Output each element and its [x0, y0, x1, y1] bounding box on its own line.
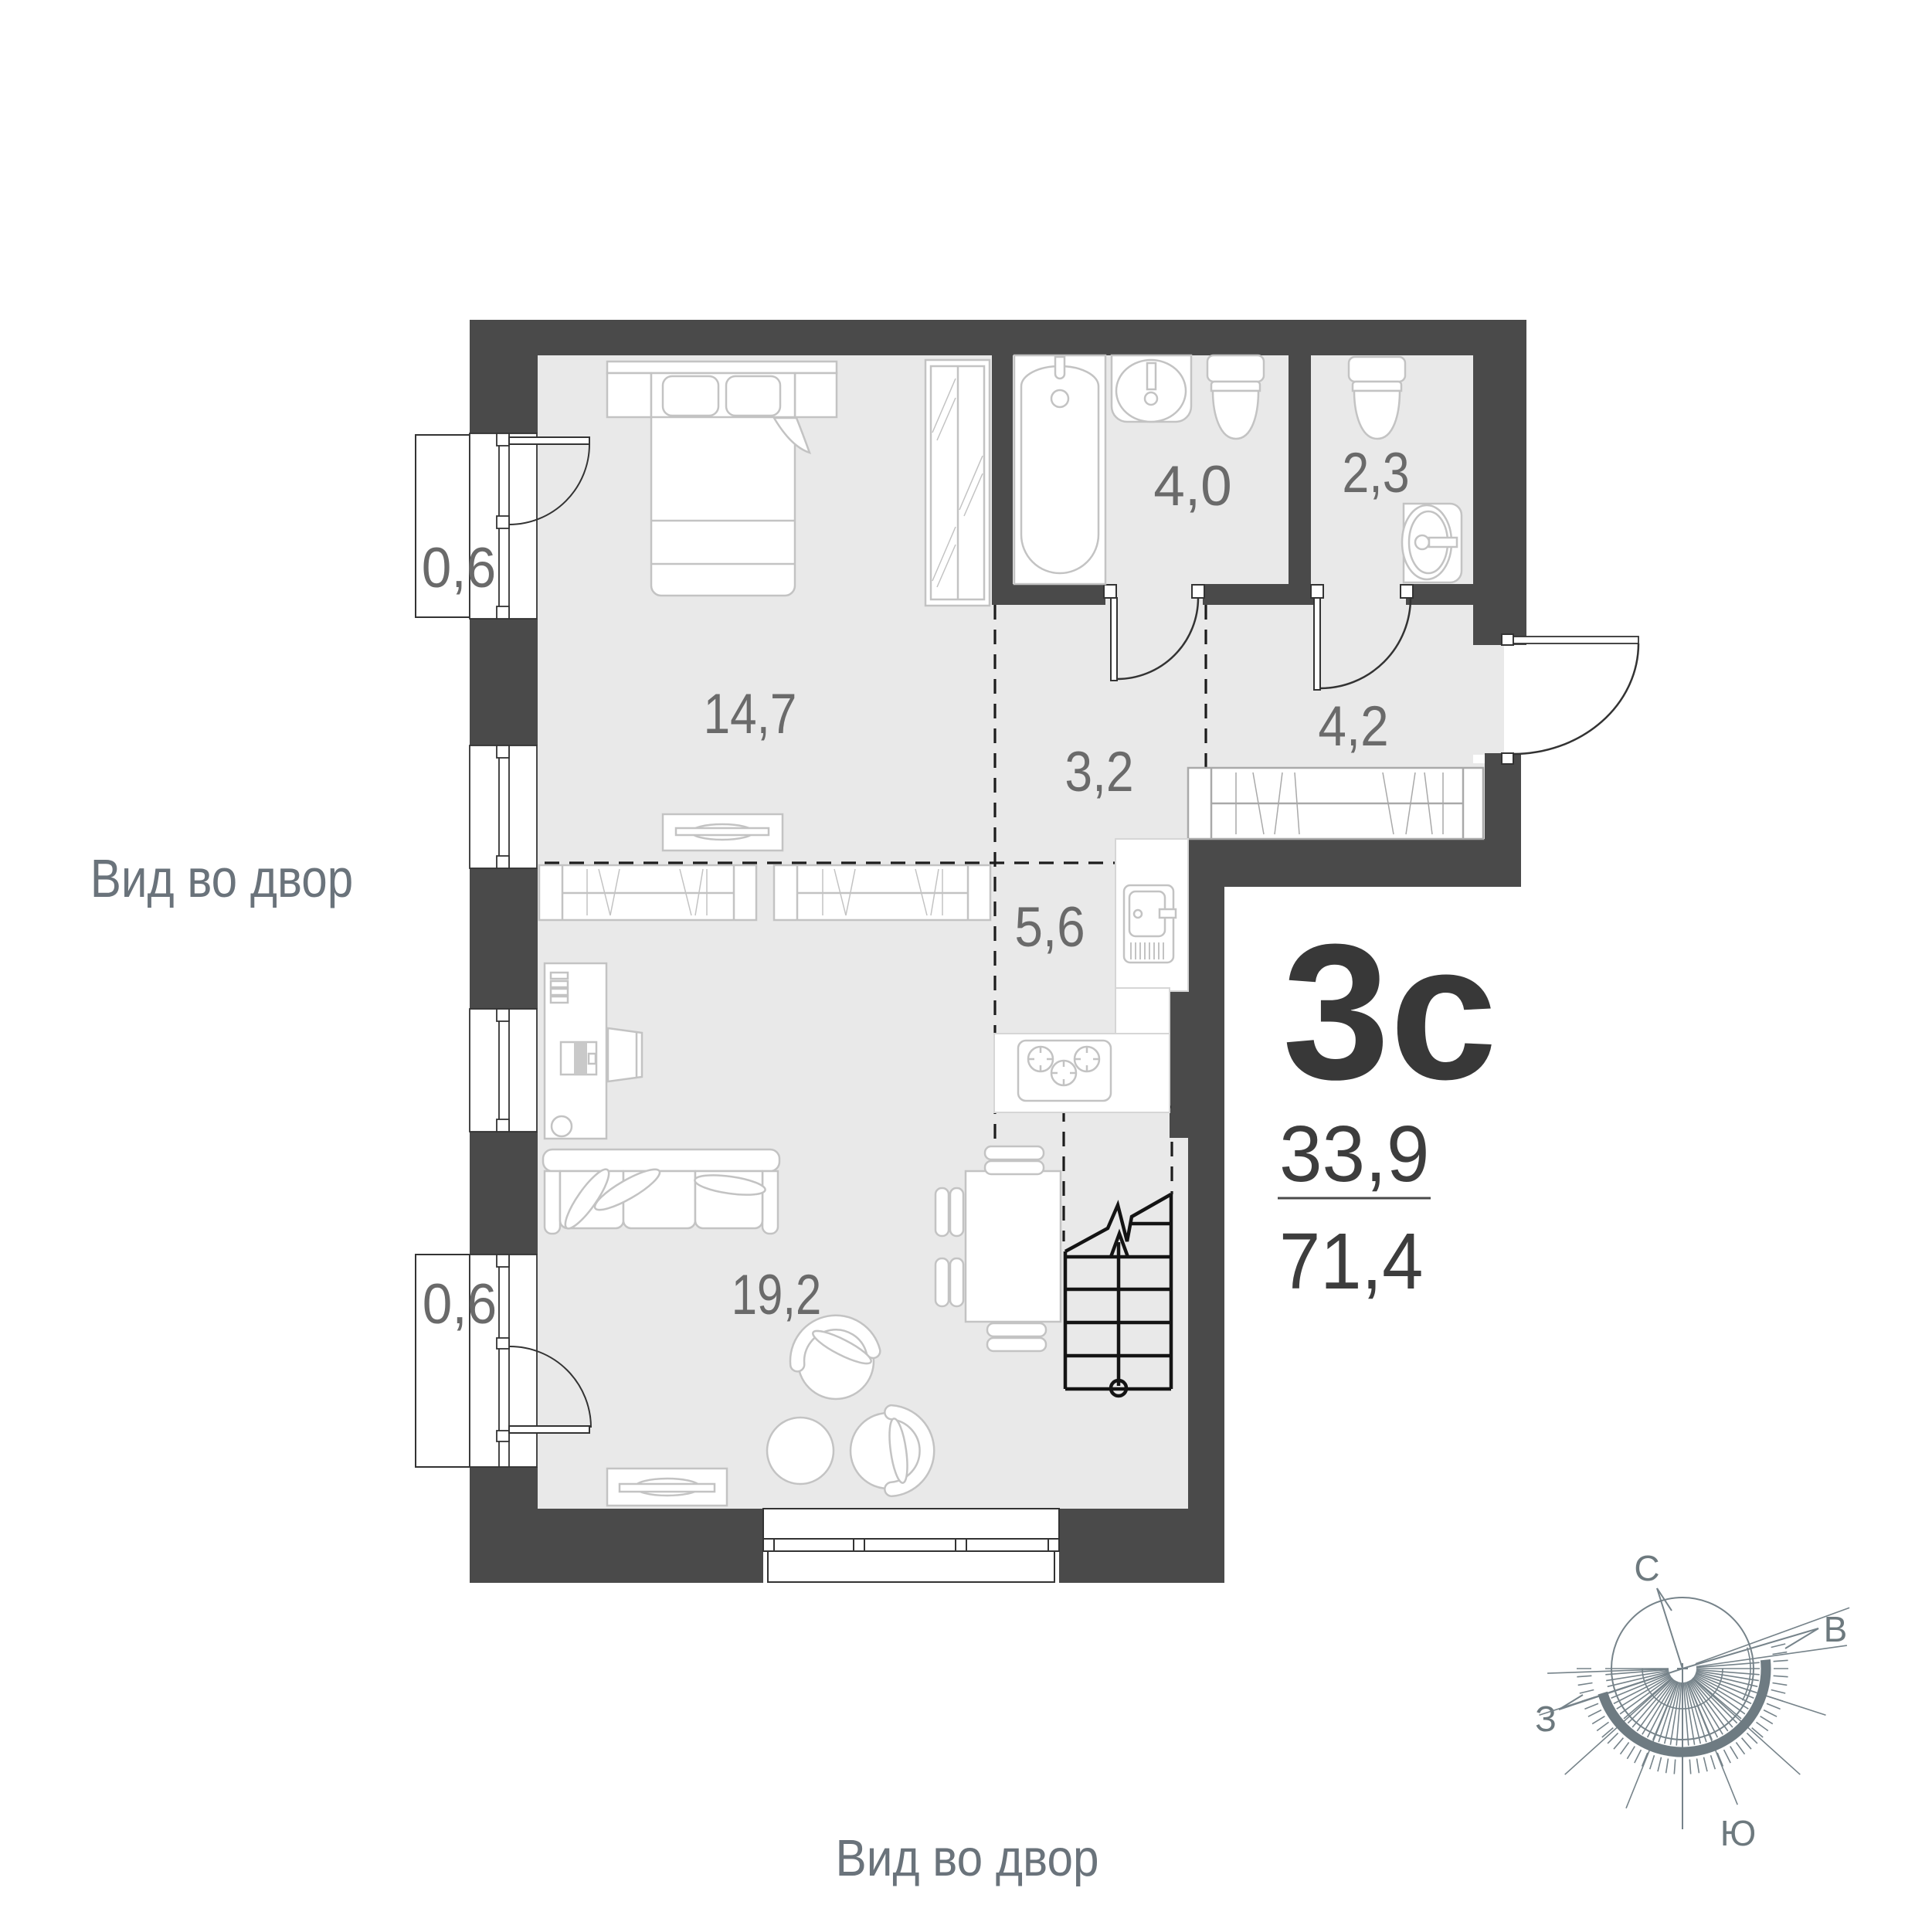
svg-text:33,9: 33,9 [1279, 1109, 1429, 1199]
svg-text:3с: 3с [1282, 904, 1497, 1119]
svg-text:19,2: 19,2 [732, 1264, 822, 1326]
svg-text:71,4: 71,4 [1279, 1217, 1423, 1306]
svg-text:Вид во двор: Вид во двор [90, 848, 353, 908]
svg-text:4,0: 4,0 [1153, 455, 1231, 518]
svg-text:Ю: Ю [1720, 1813, 1756, 1853]
svg-text:2,3: 2,3 [1342, 442, 1409, 504]
svg-text:З: З [1535, 1699, 1557, 1739]
svg-text:В: В [1824, 1609, 1848, 1649]
svg-text:Вид во двор: Вид во двор [835, 1828, 1098, 1887]
svg-text:4,2: 4,2 [1318, 694, 1388, 758]
svg-text:0,6: 0,6 [423, 1273, 497, 1336]
svg-text:5,6: 5,6 [1014, 895, 1085, 959]
svg-text:14,7: 14,7 [704, 683, 797, 745]
svg-text:0,6: 0,6 [422, 537, 496, 599]
svg-text:С: С [1634, 1548, 1659, 1588]
svg-text:3,2: 3,2 [1064, 740, 1133, 803]
